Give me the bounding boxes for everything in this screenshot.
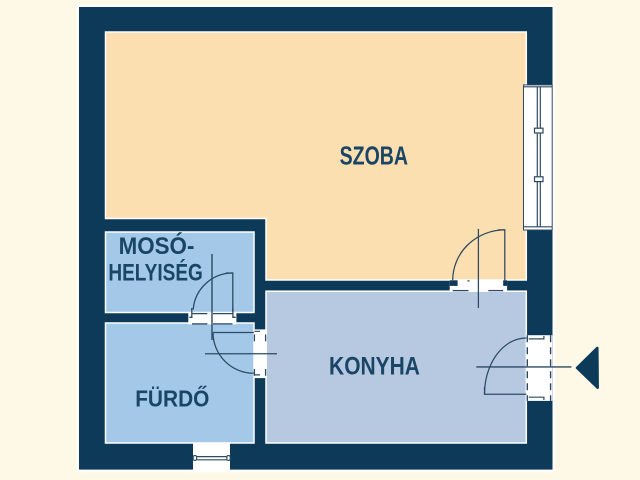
- svg-text:HELYISÉG: HELYISÉG: [108, 258, 203, 286]
- svg-text:MOSÓ-: MOSÓ-: [119, 232, 195, 260]
- svg-text:FÜRDŐ: FÜRDŐ: [135, 384, 209, 411]
- svg-text:SZOBA: SZOBA: [340, 141, 409, 171]
- svg-text:KONYHA: KONYHA: [329, 353, 420, 381]
